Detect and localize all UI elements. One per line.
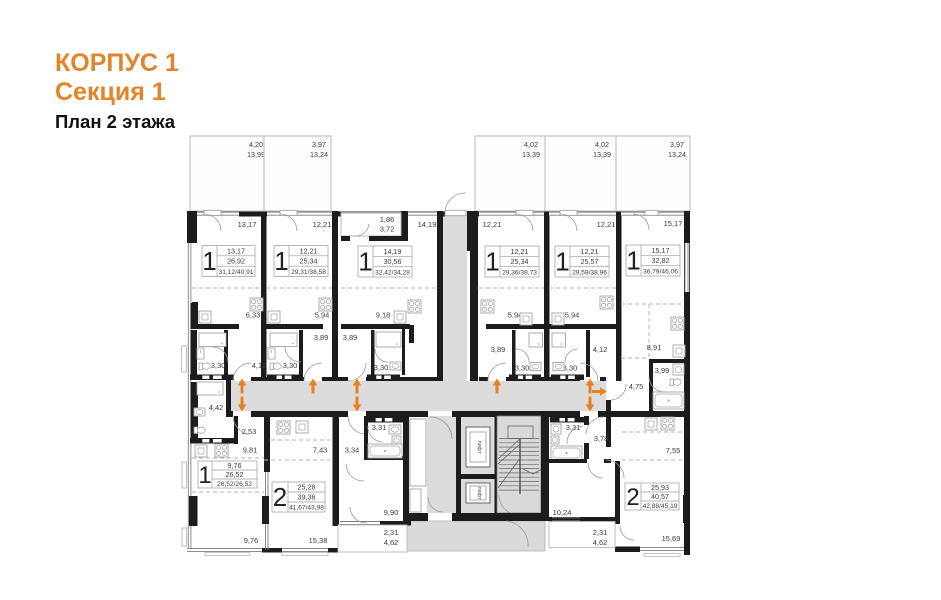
svg-text:Секция 1: Секция 1	[55, 78, 166, 106]
svg-text:8,91: 8,91	[647, 343, 662, 352]
svg-text:4,12: 4,12	[252, 361, 267, 370]
svg-text:25,34: 25,34	[511, 257, 529, 266]
svg-text:25,28: 25,28	[298, 483, 316, 492]
svg-text:2: 2	[273, 482, 287, 512]
svg-text:13,17: 13,17	[238, 220, 257, 229]
svg-text:1: 1	[485, 247, 499, 277]
svg-text:3,34: 3,34	[345, 446, 360, 455]
svg-text:12,21: 12,21	[581, 247, 599, 256]
svg-text:1: 1	[202, 246, 216, 276]
svg-text:13,99: 13,99	[247, 150, 265, 159]
svg-text:1: 1	[198, 462, 211, 489]
svg-text:25,57: 25,57	[581, 257, 599, 266]
svg-text:2: 2	[626, 484, 639, 511]
svg-text:1: 1	[274, 246, 288, 276]
svg-text:41,67/43,98: 41,67/43,98	[289, 505, 324, 512]
svg-text:4,02: 4,02	[595, 140, 609, 149]
svg-text:12,21: 12,21	[511, 247, 529, 256]
svg-text:2,31: 2,31	[593, 528, 608, 537]
svg-text:1: 1	[626, 246, 640, 276]
svg-text:3,31: 3,31	[566, 423, 581, 432]
svg-text:30,56: 30,56	[384, 257, 402, 266]
svg-text:14,19: 14,19	[418, 220, 437, 229]
svg-text:15,38: 15,38	[309, 536, 328, 545]
svg-text:1,86: 1,86	[380, 215, 395, 224]
svg-text:4,42: 4,42	[209, 403, 224, 412]
svg-text:1: 1	[555, 247, 569, 277]
svg-text:5,94: 5,94	[565, 311, 580, 320]
svg-text:КОРПУС 1: КОРПУС 1	[55, 49, 179, 77]
svg-text:26,52: 26,52	[226, 470, 244, 479]
svg-text:15,17: 15,17	[652, 246, 670, 255]
svg-text:39,36: 39,36	[298, 493, 316, 502]
svg-text:4,20: 4,20	[249, 140, 263, 149]
svg-text:29,31/38,58: 29,31/38,58	[291, 269, 326, 276]
svg-text:5,94: 5,94	[315, 311, 330, 320]
svg-text:12,21: 12,21	[313, 220, 332, 229]
svg-text:9,76: 9,76	[228, 461, 242, 470]
svg-text:32,82: 32,82	[652, 256, 670, 265]
svg-text:7,43: 7,43	[313, 446, 328, 455]
svg-text:42,88/45,19: 42,88/45,19	[643, 503, 678, 510]
svg-text:1: 1	[358, 247, 372, 277]
svg-text:3,89: 3,89	[314, 333, 329, 342]
svg-text:3,30: 3,30	[283, 361, 298, 370]
svg-text:4,12: 4,12	[593, 345, 608, 354]
svg-text:26,52/26,52: 26,52/26,52	[217, 481, 252, 488]
svg-text:3,99: 3,99	[655, 366, 670, 375]
svg-text:31,12/40,91: 31,12/40,91	[219, 269, 254, 276]
svg-text:3,30: 3,30	[374, 363, 389, 372]
svg-text:14,19: 14,19	[384, 247, 402, 256]
svg-text:3,78: 3,78	[594, 434, 609, 443]
svg-text:29,36/38,73: 29,36/38,73	[502, 269, 537, 276]
svg-text:3,72: 3,72	[380, 225, 395, 234]
svg-text:3,31: 3,31	[372, 423, 387, 432]
svg-text:4,75: 4,75	[629, 382, 644, 391]
svg-text:25,34: 25,34	[300, 257, 318, 266]
svg-text:3,89: 3,89	[343, 333, 358, 342]
svg-text:13,24: 13,24	[310, 150, 328, 159]
svg-text:25,93: 25,93	[651, 483, 669, 492]
svg-text:6,33: 6,33	[246, 311, 261, 320]
svg-text:40,57: 40,57	[651, 492, 669, 501]
svg-text:29,59/38,96: 29,59/38,96	[572, 269, 607, 276]
svg-text:7,55: 7,55	[666, 446, 681, 455]
svg-text:3,30: 3,30	[515, 364, 530, 373]
svg-text:2,31: 2,31	[384, 528, 399, 537]
svg-text:4,62: 4,62	[384, 538, 399, 547]
svg-text:3,97: 3,97	[312, 140, 326, 149]
svg-text:9,18: 9,18	[376, 311, 391, 320]
svg-text:3,30: 3,30	[211, 361, 226, 370]
svg-text:13,17: 13,17	[227, 246, 245, 255]
svg-text:13,39: 13,39	[593, 150, 611, 159]
svg-text:12,21: 12,21	[483, 220, 502, 229]
svg-text:2,53: 2,53	[242, 427, 257, 436]
svg-text:План 2 этажа: План 2 этажа	[55, 111, 176, 132]
svg-text:3,30: 3,30	[563, 364, 578, 373]
svg-text:лифт: лифт	[476, 440, 482, 454]
svg-text:32,42/34,28: 32,42/34,28	[375, 269, 410, 276]
svg-text:15,69: 15,69	[662, 534, 681, 543]
svg-text:13,24: 13,24	[668, 150, 686, 159]
svg-text:36,79/46,06: 36,79/46,06	[643, 268, 678, 275]
svg-text:10,24: 10,24	[553, 508, 572, 517]
svg-text:3,97: 3,97	[670, 140, 684, 149]
svg-text:9,76: 9,76	[244, 536, 259, 545]
svg-text:3,89: 3,89	[491, 345, 506, 354]
svg-text:4,62: 4,62	[593, 538, 608, 547]
svg-text:15,17: 15,17	[664, 219, 683, 228]
svg-text:12,21: 12,21	[300, 246, 318, 255]
svg-text:9,90: 9,90	[384, 508, 399, 517]
svg-text:12,21: 12,21	[597, 220, 616, 229]
svg-text:26,92: 26,92	[227, 257, 245, 266]
svg-text:4,02: 4,02	[524, 140, 538, 149]
svg-text:лифт: лифт	[476, 486, 482, 500]
svg-text:9,81: 9,81	[243, 446, 258, 455]
svg-text:13,39: 13,39	[522, 150, 540, 159]
